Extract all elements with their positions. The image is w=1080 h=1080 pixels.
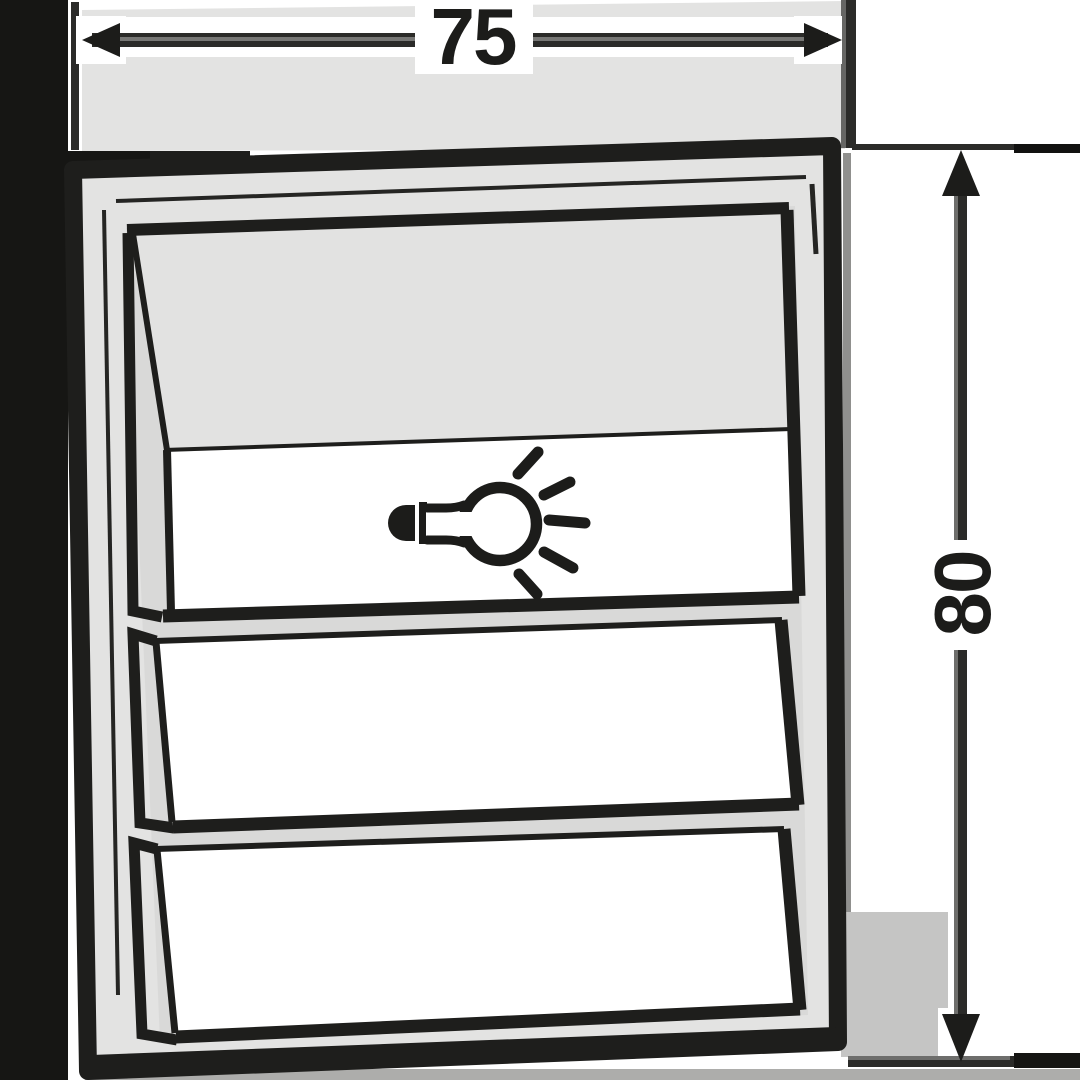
svg-text:75: 75 xyxy=(431,0,516,81)
svg-text:80: 80 xyxy=(918,552,1007,637)
